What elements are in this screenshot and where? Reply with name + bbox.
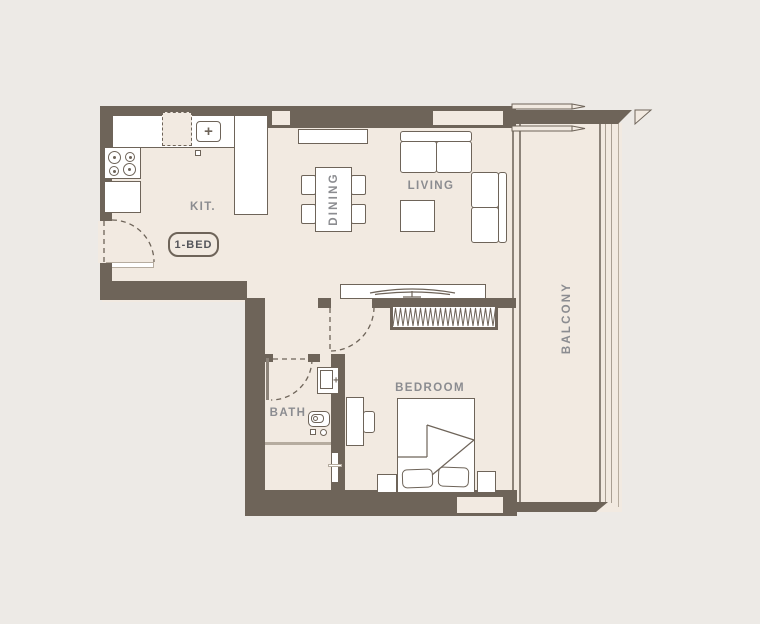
floor-plan: + xyxy=(0,0,760,624)
unit-type-badge: 1-BED xyxy=(168,232,219,257)
label-bedroom: BEDROOM xyxy=(395,382,465,394)
door-swings xyxy=(0,0,760,624)
bedroom-door-arc xyxy=(330,307,374,351)
label-bath: BATH xyxy=(270,407,307,419)
label-living: LIVING xyxy=(408,180,455,192)
label-balcony: BALCONY xyxy=(561,282,573,354)
label-dining: DINING xyxy=(328,172,340,225)
entry-door-arc xyxy=(112,220,154,262)
bath-door-arc xyxy=(271,359,312,400)
label-kitchen: KIT. xyxy=(190,201,216,213)
